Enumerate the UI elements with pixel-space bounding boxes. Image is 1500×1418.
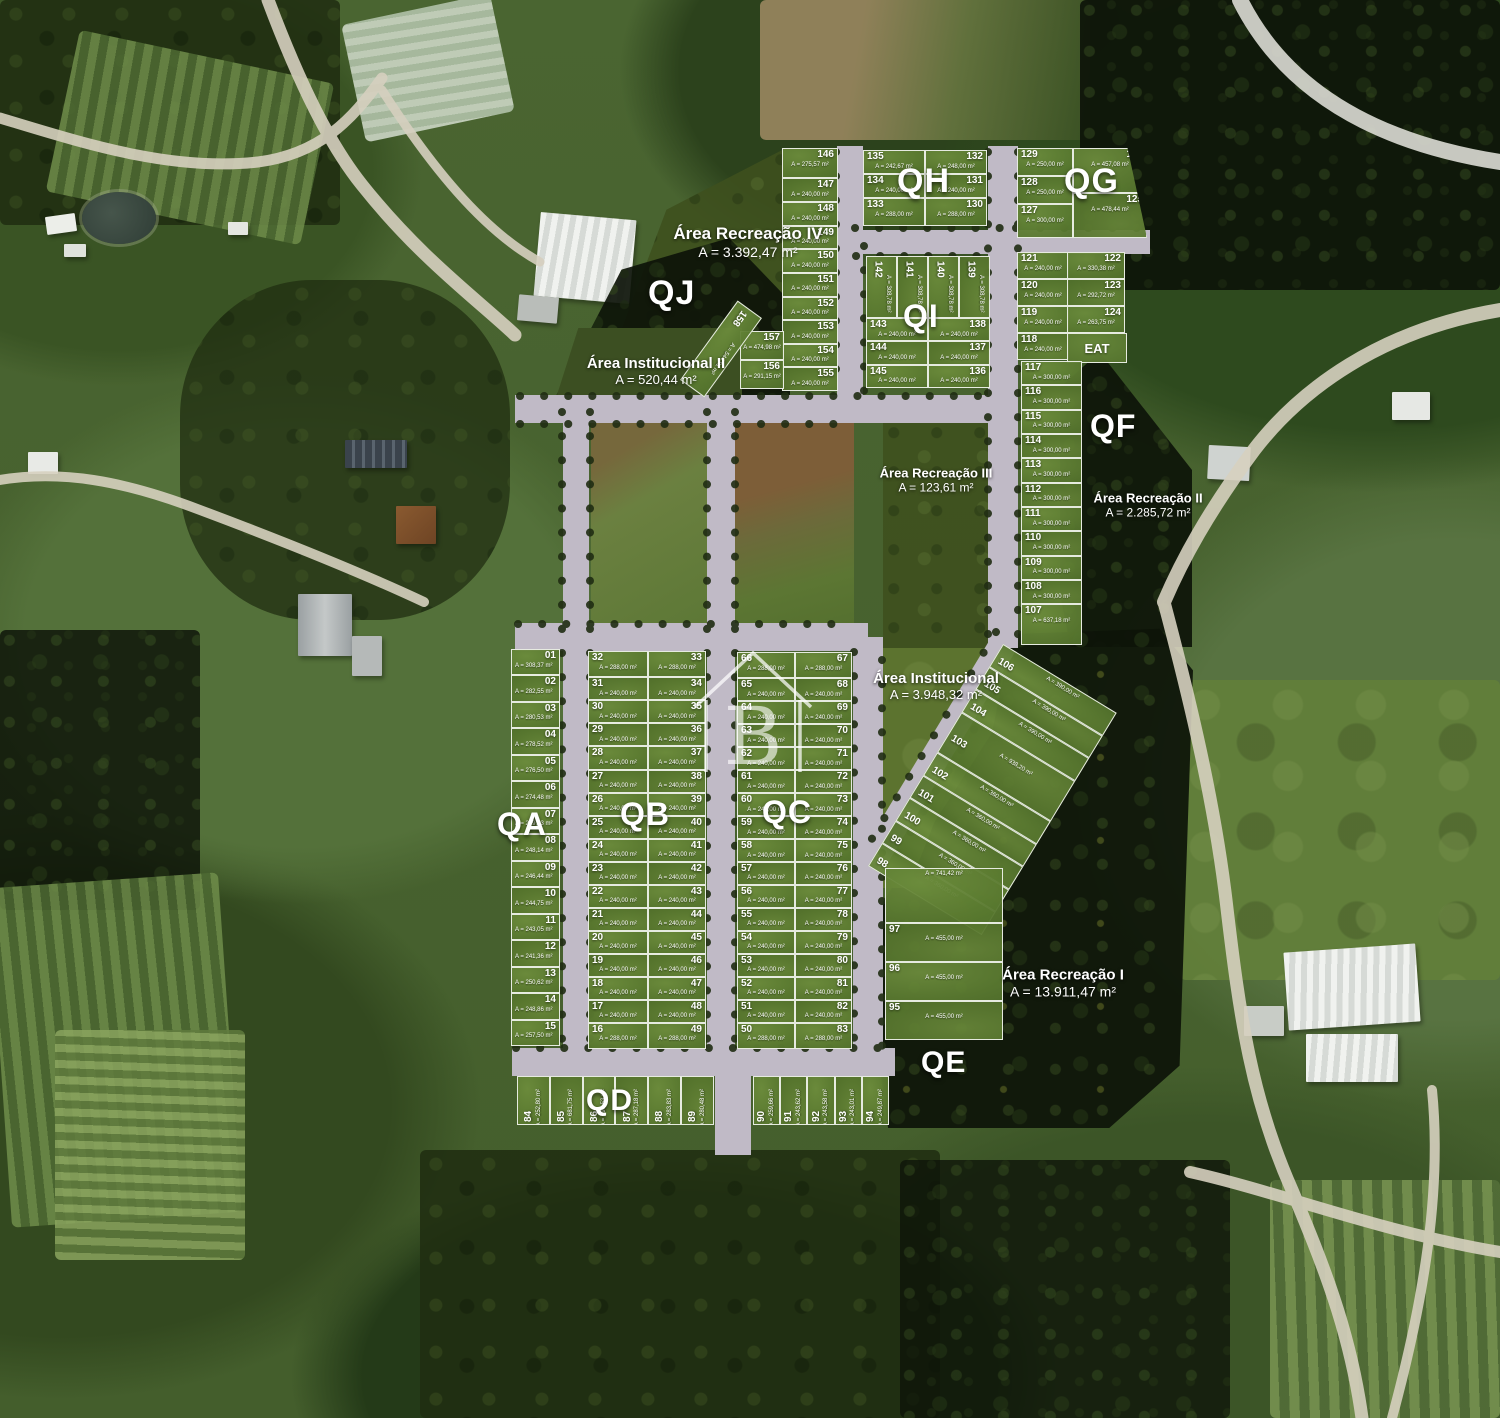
lot-15: 15A = 257,50 m² xyxy=(511,1020,560,1046)
lot-number: 12 xyxy=(545,942,556,953)
lot-49: 49A = 288,00 m² xyxy=(648,1023,706,1049)
lot-area: A = 243,58 m² xyxy=(823,1089,830,1125)
lot-number: 136 xyxy=(969,367,986,378)
lot-area: A = 288,00 m² xyxy=(747,1036,785,1043)
lot-number: 121 xyxy=(1021,254,1038,265)
lot-number: 01 xyxy=(545,651,556,662)
lot-area: A = 240,00 m² xyxy=(658,760,696,767)
lot-area: A = 240,00 m² xyxy=(658,944,696,951)
lot-112: 112A = 300,00 m² xyxy=(1021,483,1082,507)
lot-number: 81 xyxy=(837,979,848,990)
lot-area: A = 300,00 m² xyxy=(1033,472,1071,479)
lot-118: 118A = 240,00 m² xyxy=(1017,333,1069,360)
lot-area: A = 263,75 m² xyxy=(1077,320,1115,327)
lot-area: A = 300,00 m² xyxy=(1026,218,1064,225)
lot-area: A = 240,00 m² xyxy=(599,875,637,882)
lot-number: 60 xyxy=(741,795,752,806)
lot-number: 06 xyxy=(545,783,556,794)
lot-10: 10A = 244,75 m² xyxy=(511,887,560,913)
lot-97: 97A = 455,00 m² xyxy=(885,923,1003,962)
lot-number: 129 xyxy=(1021,150,1038,161)
lot-area: A = 240,00 m² xyxy=(747,944,785,951)
lot-number: 84 xyxy=(524,1081,535,1122)
block-qj-lots-146-155: 146A = 275,57 m²147A = 240,00 m²148A = 2… xyxy=(782,148,838,391)
lot-121: 121A = 240,00 m² xyxy=(1017,252,1069,279)
lot-number: 11 xyxy=(545,916,556,927)
lot-number: 52 xyxy=(741,979,752,990)
lot-area: A = 240,00 m² xyxy=(747,853,785,860)
lot-area: A = 240,00 m² xyxy=(805,738,843,745)
lot-area: A = 240,00 m² xyxy=(658,1013,696,1020)
lot-number: 33 xyxy=(691,653,702,664)
block-qd-lots-east: 90A = 259,66 m²91A = 243,62 m²92A = 243,… xyxy=(753,1076,889,1125)
lot-108: 108A = 300,00 m² xyxy=(1021,580,1082,604)
label-area-institucional-2: Área Institucional II A = 520,44 m² xyxy=(587,355,725,387)
lot-number: 55 xyxy=(741,910,752,921)
label-title: Área Institucional II xyxy=(587,355,725,372)
lot-number: 05 xyxy=(545,757,556,768)
lot-area: A = 240,00 m² xyxy=(791,216,829,223)
lot-number: 88 xyxy=(655,1081,666,1122)
label-title: Área Recreação IV xyxy=(673,224,822,244)
lot-area: A = 240,00 m² xyxy=(747,875,785,882)
lot-number: 66 xyxy=(741,654,752,665)
lot-area: A = 259,66 m² xyxy=(769,1089,776,1125)
lot-94: 94A = 249,87 m² xyxy=(862,1076,889,1125)
lot-37: 37A = 240,00 m² xyxy=(648,746,706,769)
eat-parcel: EAT xyxy=(1067,333,1127,363)
lot-area: A = 240,00 m² xyxy=(599,783,637,790)
lot-area: A = 240,00 m² xyxy=(747,692,785,699)
lot-09: 09A = 246,44 m² xyxy=(511,861,560,887)
lot-67: 67A = 288,00 m² xyxy=(795,652,852,678)
lot-number: 09 xyxy=(545,863,556,874)
lot-area: A = 300,00 m² xyxy=(1033,399,1071,406)
label-area-institucional: Área Institucional A = 3.948,32 m² xyxy=(873,670,999,702)
lot-24: 24A = 240,00 m² xyxy=(588,839,648,862)
lot-number: 44 xyxy=(691,910,702,921)
lot-number: 28 xyxy=(592,748,603,759)
lot-116: 116A = 300,00 m² xyxy=(1021,385,1082,409)
lot-area: A = 240,00 m² xyxy=(1024,266,1062,273)
label-title: Área Recreação III xyxy=(880,466,993,481)
lot-area: A = 248,86 m² xyxy=(515,1007,553,1014)
lot-area: A = 288,00 m² xyxy=(658,665,696,672)
lot-area: A = 240,00 m² xyxy=(805,761,843,768)
block-label-qh: QH xyxy=(897,162,950,201)
lot-156: 156A = 291,15 m² xyxy=(740,360,784,389)
lot-11: 11A = 243,05 m² xyxy=(511,914,560,940)
lot-number: 40 xyxy=(691,818,702,829)
block-label-qj: QJ xyxy=(648,274,695,313)
lot-area: A = 240,00 m² xyxy=(1024,320,1062,327)
lot-number: 03 xyxy=(545,704,556,715)
lot-number: 16 xyxy=(592,1025,603,1036)
lot-154: 154A = 240,00 m² xyxy=(782,344,838,368)
lot-number: 78 xyxy=(837,910,848,921)
lot-number: 46 xyxy=(691,956,702,967)
lot-area: A = 308,78 m² xyxy=(977,275,984,313)
lot-number: 53 xyxy=(741,956,752,967)
lot-78: 78A = 240,00 m² xyxy=(795,908,852,931)
lot-76: 76A = 240,00 m² xyxy=(795,862,852,885)
lot-number: 142 xyxy=(872,261,883,315)
lot-51: 51A = 240,00 m² xyxy=(737,1000,795,1023)
lot-number: 127 xyxy=(1021,206,1038,217)
lot-06: 06A = 274,48 m² xyxy=(511,781,560,807)
lot-136: 136A = 240,00 m² xyxy=(928,365,990,388)
lot-number: 48 xyxy=(691,1002,702,1013)
lot-33: 33A = 288,00 m² xyxy=(648,651,706,677)
lot-156: 156A = 291,15 m² xyxy=(740,360,784,389)
lot-area: A = 300,00 m² xyxy=(1033,569,1071,576)
lot-number: 134 xyxy=(867,176,884,187)
lot-115: 115A = 300,00 m² xyxy=(1021,410,1082,434)
lot-number: 24 xyxy=(592,841,603,852)
lot-number: 19 xyxy=(592,956,603,967)
lot-number: 91 xyxy=(784,1081,795,1122)
lot-number: 92 xyxy=(812,1081,823,1122)
lot-number: 51 xyxy=(741,1002,752,1013)
lot-area: A = 240,00 m² xyxy=(805,875,843,882)
lot-03: 03A = 280,53 m² xyxy=(511,702,560,728)
lot-area: A = 637,18 m² xyxy=(1033,618,1071,625)
block-qb-lots-west: 32A = 288,00 m²31A = 240,00 m²30A = 240,… xyxy=(588,651,648,1049)
lot-number: 26 xyxy=(592,795,603,806)
lot-number: 37 xyxy=(691,748,702,759)
lot-04: 04A = 278,52 m² xyxy=(511,728,560,754)
lot-number: 157 xyxy=(763,333,780,344)
lot-area: A = 243,05 m² xyxy=(515,927,553,934)
lot-number: 155 xyxy=(817,369,834,380)
lot-number: 147 xyxy=(817,180,834,191)
lot-146: 146A = 275,57 m² xyxy=(782,148,838,178)
lot-117: 117A = 300,00 m² xyxy=(1021,361,1082,385)
lot-area: A = 240,00 m² xyxy=(805,692,843,699)
lot-number: 116 xyxy=(1025,387,1041,398)
lot-area: A = 240,00 m² xyxy=(599,852,637,859)
lot-number: 153 xyxy=(817,322,834,333)
lot-number: 30 xyxy=(592,702,603,713)
lot-number: 154 xyxy=(817,346,834,357)
lot-area: A = 240,00 m² xyxy=(747,990,785,997)
lot-number: 74 xyxy=(837,818,848,829)
lot-number: 119 xyxy=(1021,308,1037,319)
lot-number: 54 xyxy=(741,933,752,944)
lot-area: A = 257,50 m² xyxy=(515,1033,553,1040)
lot-area: A = 240,00 m² xyxy=(747,761,785,768)
lot-area: A = 283,83 m² xyxy=(667,1089,674,1125)
lot-area: A = 240,00 m² xyxy=(805,898,843,905)
lot-area: A = 249,87 m² xyxy=(878,1089,885,1125)
lot-area: A = 240,00 m² xyxy=(747,967,785,974)
lot-77: 77A = 240,00 m² xyxy=(795,885,852,908)
lot-area: A = 240,00 m² xyxy=(940,355,978,362)
lot-number: 115 xyxy=(1025,412,1041,423)
lot-38: 38A = 240,00 m² xyxy=(648,770,706,793)
label-area-value: A = 2.285,72 m² xyxy=(1093,506,1202,520)
lot-area: A = 240,00 m² xyxy=(805,1013,843,1020)
lot-area: A = 280,48 m² xyxy=(700,1089,707,1125)
lot-number: 80 xyxy=(837,956,848,967)
block-label-qb: QB xyxy=(620,796,670,833)
lot-number: 72 xyxy=(837,772,848,783)
lot-area: A = 250,62 m² xyxy=(515,980,553,987)
lot-area: A = 455,00 m² xyxy=(925,936,963,943)
lot-number: 145 xyxy=(870,367,887,378)
block-label-qa: QA xyxy=(497,806,547,843)
lot-number: 89 xyxy=(688,1081,699,1122)
lot-91: 91A = 243,62 m² xyxy=(780,1076,807,1125)
lot-151: 151A = 240,00 m² xyxy=(782,273,838,297)
label-area-recreacao-4: Área Recreação IV A = 3.392,47 m² xyxy=(673,224,822,260)
lot-number: 27 xyxy=(592,772,603,783)
lot-area: A = 240,00 m² xyxy=(805,967,843,974)
lot-48: 48A = 240,00 m² xyxy=(648,1000,706,1023)
lot-area: A = 240,00 m² xyxy=(658,990,696,997)
lot-83: 83A = 288,00 m² xyxy=(795,1023,852,1049)
lot-number: 56 xyxy=(741,887,752,898)
lot-14: 14A = 248,86 m² xyxy=(511,993,560,1019)
lot-area: A = 240,00 m² xyxy=(1024,293,1062,300)
lot-54: 54A = 240,00 m² xyxy=(737,931,795,954)
lot-area: A = 240,00 m² xyxy=(747,738,785,745)
lot-36: 36A = 240,00 m² xyxy=(648,723,706,746)
lot-number: 108 xyxy=(1025,582,1042,593)
lot-number: 13 xyxy=(545,969,556,980)
lot-number: 151 xyxy=(817,275,834,286)
lot-44: 44A = 240,00 m² xyxy=(648,908,706,931)
lot-17: 17A = 240,00 m² xyxy=(588,1000,648,1023)
lot-number: 93 xyxy=(839,1081,850,1122)
lot-number: 23 xyxy=(592,864,603,875)
lot-137: 137A = 240,00 m² xyxy=(928,341,990,364)
lot-29: 29A = 240,00 m² xyxy=(588,723,648,746)
lot-area: A = 250,00 m² xyxy=(1026,190,1064,197)
label-area-value: A = 3.948,32 m² xyxy=(873,687,999,702)
lot-111: 111A = 300,00 m² xyxy=(1021,507,1082,531)
lot-area: A = 288,00 m² xyxy=(658,1036,696,1043)
lot-90: 90A = 259,66 m² xyxy=(753,1076,780,1125)
lot-number: 130 xyxy=(966,200,983,211)
lot-number: 38 xyxy=(691,772,702,783)
lot-area: A = 240,00 m² xyxy=(658,921,696,928)
lot-32: 32A = 288,00 m² xyxy=(588,651,648,677)
lot-22: 22A = 240,00 m² xyxy=(588,885,648,908)
lot-area: A = 241,36 m² xyxy=(515,954,553,961)
label-area-value: A = 3.392,47 m² xyxy=(673,244,822,260)
lot-number: 42 xyxy=(691,864,702,875)
lot-area: A = 741,42 m² xyxy=(925,871,963,878)
lot-18: 18A = 240,00 m² xyxy=(588,977,648,1000)
lot-number: 64 xyxy=(741,703,752,714)
aerial-masterplan-map: 146A = 275,57 m²147A = 240,00 m²148A = 2… xyxy=(0,0,1500,1418)
lot-53: 53A = 240,00 m² xyxy=(737,954,795,977)
lot-41: 41A = 240,00 m² xyxy=(648,839,706,862)
lot-number: 135 xyxy=(867,152,884,163)
lot-number: 146 xyxy=(817,150,834,161)
lot-number: 95 xyxy=(889,1003,900,1014)
lot-number: 143 xyxy=(870,320,887,331)
lot-area: A = 308,37 m² xyxy=(515,663,553,670)
lot-area: A = 240,00 m² xyxy=(878,355,916,362)
block-qf-lots-upper-east: 122A = 330,38 m²123A = 292,72 m²124A = 2… xyxy=(1067,252,1125,333)
lot-number: 77 xyxy=(837,887,848,898)
lot-number: 49 xyxy=(691,1025,702,1036)
lot-120: 120A = 240,00 m² xyxy=(1017,279,1069,306)
lot-69: 69A = 240,00 m² xyxy=(795,701,852,724)
lot-80: 80A = 240,00 m² xyxy=(795,954,852,977)
lot-area: A = 275,57 m² xyxy=(791,162,829,169)
lot-number: 96 xyxy=(889,964,900,975)
lot-110: 110A = 300,00 m² xyxy=(1021,531,1082,555)
lot-number: 29 xyxy=(592,725,603,736)
block-label-qi: QI xyxy=(903,298,939,335)
block-label-qg: QG xyxy=(1064,162,1119,201)
lot-66: 66A = 288,00 m² xyxy=(737,652,795,678)
lot-area: A = 240,00 m² xyxy=(658,714,696,721)
lot-area: A = 288,00 m² xyxy=(805,666,843,673)
lot-number: 144 xyxy=(870,343,887,354)
block-label-qe: QE xyxy=(921,1046,966,1080)
lot-area: A = 287,18 m² xyxy=(634,1089,641,1125)
lot-area: A = 455,00 m² xyxy=(925,975,963,982)
lot-number: 138 xyxy=(969,320,986,331)
lot-89: 89A = 280,48 m² xyxy=(681,1076,714,1125)
lot-113: 113A = 300,00 m² xyxy=(1021,458,1082,482)
lot-number: 124 xyxy=(1104,308,1121,319)
lot-number: 34 xyxy=(691,679,702,690)
lot-area: A = 240,00 m² xyxy=(599,898,637,905)
lot-50: 50A = 288,00 m² xyxy=(737,1023,795,1049)
lots-95-97: A = 741,42 m²97A = 455,00 m²96A = 455,00… xyxy=(885,868,1003,1040)
lot-153: 153A = 240,00 m² xyxy=(782,320,838,344)
lot-147: 147A = 240,00 m² xyxy=(782,178,838,202)
lot-number: 133 xyxy=(867,200,884,211)
lot-123: 123A = 292,72 m² xyxy=(1067,279,1125,306)
lot-number: 83 xyxy=(837,1025,848,1036)
lot-area: A = 240,00 m² xyxy=(940,332,978,339)
lot-number: 68 xyxy=(837,680,848,691)
lot-area: A = 455,00 m² xyxy=(925,1014,963,1021)
lot-number: 131 xyxy=(966,176,983,187)
lot-number: 62 xyxy=(741,749,752,760)
label-title: Área Recreação II xyxy=(1093,491,1202,506)
lot-46: 46A = 240,00 m² xyxy=(648,954,706,977)
lot-number: 137 xyxy=(969,343,986,354)
lot-area: A = 240,00 m² xyxy=(658,898,696,905)
lot-number: 32 xyxy=(592,653,603,664)
lot-124: 124A = 263,75 m² xyxy=(1067,306,1125,333)
lot-area: A = 288,00 m² xyxy=(747,666,785,673)
lot-area: A = 240,00 m² xyxy=(599,737,637,744)
lot-number: 71 xyxy=(837,749,848,760)
lot-number: 117 xyxy=(1025,363,1041,374)
lot-number: 47 xyxy=(691,979,702,990)
lot-number: 112 xyxy=(1025,485,1041,496)
lot-130: 130A = 288,00 m² xyxy=(925,198,987,226)
lot-number: 35 xyxy=(691,702,702,713)
lot-area: A = 300,00 m² xyxy=(1033,423,1071,430)
lot-area: A = 240,00 m² xyxy=(791,310,829,317)
lot-area: A = 240,00 m² xyxy=(658,783,696,790)
lot-area: A = 288,00 m² xyxy=(937,212,975,219)
lot-number: 85 xyxy=(557,1081,568,1122)
lot-number: 123 xyxy=(1104,281,1121,292)
lot-27: 27A = 240,00 m² xyxy=(588,770,648,793)
lot-05: 05A = 276,50 m² xyxy=(511,755,560,781)
lot-number: 75 xyxy=(837,841,848,852)
block-qc-lots-west: 66A = 288,00 m²65A = 240,00 m²64A = 240,… xyxy=(737,652,795,1049)
lot-number: 132 xyxy=(966,152,983,163)
lot-number: 58 xyxy=(741,841,752,852)
lot-109: 109A = 300,00 m² xyxy=(1021,556,1082,580)
label-title: Área Recreação I xyxy=(1002,967,1124,984)
lot-area: A = 250,00 m² xyxy=(1026,162,1064,169)
lot-area: A = 240,00 m² xyxy=(747,715,785,722)
lot-01: 01A = 308,37 m² xyxy=(511,649,560,675)
lot-31: 31A = 240,00 m² xyxy=(588,677,648,700)
lot-area: A = 288,00 m² xyxy=(875,212,913,219)
lot-number: 156 xyxy=(763,362,780,373)
lot-area: A = 240,00 m² xyxy=(599,714,637,721)
lot-number: 45 xyxy=(691,933,702,944)
lot-area: A = 240,00 m² xyxy=(599,921,637,928)
lot-number: 43 xyxy=(691,887,702,898)
lot-57: 57A = 240,00 m² xyxy=(737,862,795,885)
lot-area: A = 330,38 m² xyxy=(1077,266,1115,273)
label-area-recreacao-1: Área Recreação I A = 13.911,47 m² xyxy=(1002,967,1124,1000)
lot-28: 28A = 240,00 m² xyxy=(588,746,648,769)
lot-42: 42A = 240,00 m² xyxy=(648,862,706,885)
lot-20: 20A = 240,00 m² xyxy=(588,931,648,954)
lot-area: A = 240,00 m² xyxy=(791,381,829,388)
lot-area: A = 300,00 m² xyxy=(1033,545,1071,552)
block-label-qf: QF xyxy=(1090,408,1136,445)
lot-area: A = 240,00 m² xyxy=(791,357,829,364)
lot-144: 144A = 240,00 m² xyxy=(866,341,928,364)
lot-63: 63A = 240,00 m² xyxy=(737,724,795,747)
lot-13: 13A = 250,62 m² xyxy=(511,967,560,993)
lot-number: 107 xyxy=(1025,606,1042,617)
lot-88: 88A = 283,83 m² xyxy=(648,1076,681,1125)
lot-35: 35A = 240,00 m² xyxy=(648,700,706,723)
lot-area: A = 240,00 m² xyxy=(658,875,696,882)
lot-area: A = 240,00 m² xyxy=(878,378,916,385)
lot-area: A = 240,00 m² xyxy=(791,192,829,199)
block-qa-lots: 01A = 308,37 m²02A = 282,55 m²03A = 280,… xyxy=(511,649,560,1046)
lot-16: 16A = 288,00 m² xyxy=(588,1023,648,1049)
block-qf-lots-upper-west: 121A = 240,00 m²120A = 240,00 m²119A = 2… xyxy=(1017,252,1069,360)
lot-area: A = 288,00 m² xyxy=(599,1036,637,1043)
lot-area: A = 274,48 m² xyxy=(515,795,553,802)
lot-number: 122 xyxy=(1104,254,1121,265)
lot-area: A = 478,44 m² xyxy=(1091,207,1129,214)
lot-number: 111 xyxy=(1025,509,1041,520)
lot-number: 50 xyxy=(741,1025,752,1036)
lot-number: 73 xyxy=(837,795,848,806)
lot-area: A = 240,00 m² xyxy=(658,967,696,974)
block-qf-lots: 117A = 300,00 m²116A = 300,00 m²115A = 3… xyxy=(1021,361,1082,645)
lot-number: 41 xyxy=(691,841,702,852)
lot-21: 21A = 240,00 m² xyxy=(588,908,648,931)
lot-area: A = 288,00 m² xyxy=(599,665,637,672)
label-area-value: A = 13.911,47 m² xyxy=(1002,984,1124,1000)
lot-85: 85A = 681,75 m² xyxy=(550,1076,583,1125)
lot-81: 81A = 240,00 m² xyxy=(795,977,852,1000)
lot-area: A = 240,00 m² xyxy=(599,967,637,974)
lot-number: 94 xyxy=(866,1081,877,1122)
